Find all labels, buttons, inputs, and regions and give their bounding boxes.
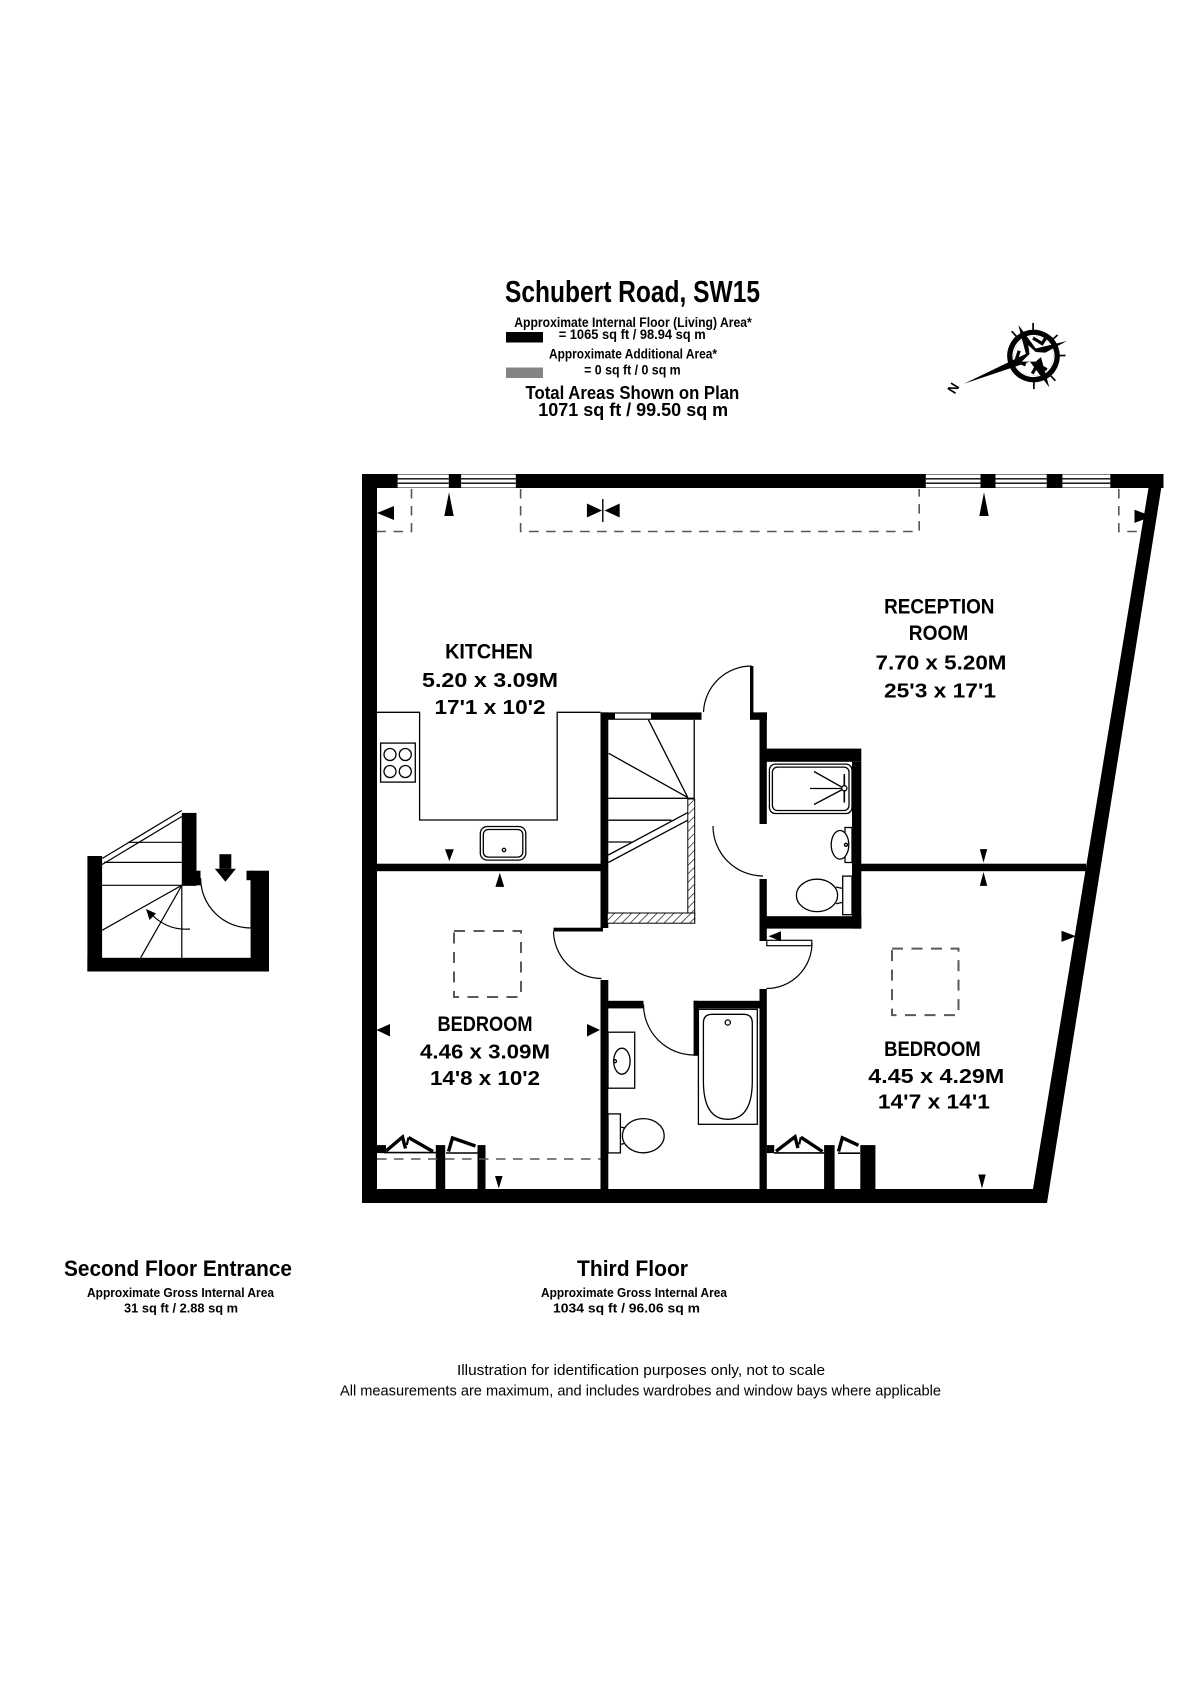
svg-text:4.45 x 4.29M: 4.45 x 4.29M <box>868 1065 1004 1088</box>
svg-text:Third Floor: Third Floor <box>577 1256 688 1281</box>
svg-text:1034 sq ft / 96.06 sq m: 1034 sq ft / 96.06 sq m <box>553 1301 700 1316</box>
svg-text:1071 sq ft / 99.50 sq m: 1071 sq ft / 99.50 sq m <box>538 400 728 420</box>
svg-text:Approximate Gross Internal Are: Approximate Gross Internal Area <box>87 1285 275 1300</box>
svg-text:Approximate Gross Internal Are: Approximate Gross Internal Area <box>541 1285 728 1300</box>
svg-text:5.20 x 3.09M: 5.20 x 3.09M <box>422 669 558 692</box>
svg-text:17'1 x 10'2: 17'1 x 10'2 <box>435 696 546 719</box>
svg-text:= 0 sq ft / 0 sq m: = 0 sq ft / 0 sq m <box>584 362 681 377</box>
svg-text:7.70 x 5.20M: 7.70 x 5.20M <box>876 652 1007 675</box>
svg-text:= 1065 sq ft / 98.94 sq m: = 1065 sq ft / 98.94 sq m <box>559 327 706 342</box>
svg-text:14'7 x 14'1: 14'7 x 14'1 <box>878 1091 990 1114</box>
svg-text:14'8 x 10'2: 14'8 x 10'2 <box>430 1067 540 1090</box>
svg-text:25'3 x 17'1: 25'3 x 17'1 <box>884 680 996 703</box>
svg-text:Second Floor Entrance: Second Floor Entrance <box>64 1256 292 1281</box>
svg-text:31 sq ft / 2.88 sq m: 31 sq ft / 2.88 sq m <box>124 1301 238 1316</box>
svg-text:Illustration for identificatio: Illustration for identification purposes… <box>457 1362 825 1379</box>
svg-text:BEDROOM: BEDROOM <box>884 1038 981 1061</box>
svg-text:KITCHEN: KITCHEN <box>445 641 533 664</box>
svg-text:All measurements are maximum,: All measurements are maximum, and includ… <box>340 1383 941 1400</box>
svg-text:ROOM: ROOM <box>909 622 969 645</box>
svg-text:Approximate Additional Area*: Approximate Additional Area* <box>549 347 718 362</box>
svg-text:RECEPTION: RECEPTION <box>884 596 994 619</box>
svg-text:Schubert Road, SW15: Schubert Road, SW15 <box>505 274 760 309</box>
svg-text:4.46 x 3.09M: 4.46 x 3.09M <box>420 1041 550 1064</box>
svg-text:BEDROOM: BEDROOM <box>438 1013 533 1036</box>
